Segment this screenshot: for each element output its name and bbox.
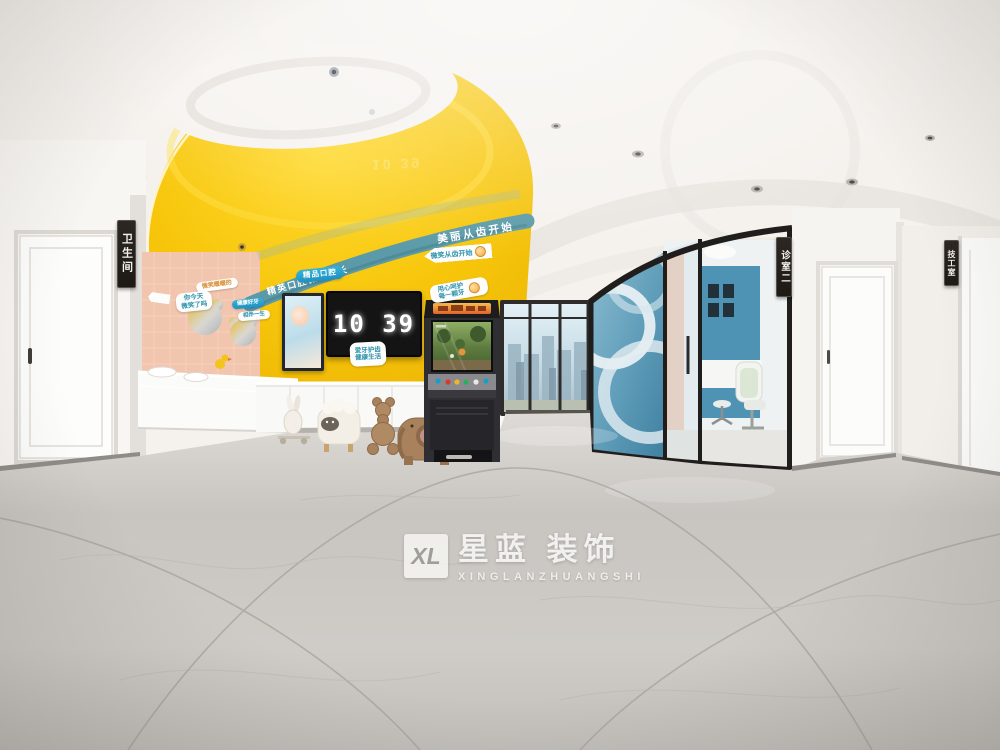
wash-basin	[148, 367, 176, 377]
baby-poster	[282, 293, 324, 371]
door-handle	[28, 348, 32, 364]
tv-tag-sign: 爱牙护齿 健康生活	[349, 341, 386, 367]
glass-door	[668, 240, 700, 462]
room2-door-sign: 诊室二	[776, 237, 792, 297]
lab-door	[960, 236, 1000, 476]
cloud-lamp	[704, 245, 736, 259]
pink-wall-sign-2b: 微笑了吗	[181, 300, 208, 310]
lab-door-sign: 技工室	[944, 240, 959, 286]
scene-drawing: 精英口腔微笑成长 美丽从齿开始	[0, 0, 1000, 750]
baby-face-art	[291, 306, 309, 326]
arcade-machine	[424, 300, 500, 462]
clock-ceiling-reflection: 10 39	[372, 155, 423, 174]
clock-time: 10 39	[333, 310, 415, 338]
panorama-scene: 精英口腔微笑成长 美丽从齿开始	[0, 0, 1000, 750]
pink-wall-sign-2: 你今天 微笑了吗	[175, 290, 213, 313]
left-wall	[0, 140, 146, 475]
smile-arrow-text: 微笑从齿开始	[430, 247, 473, 261]
room2-door	[818, 263, 896, 459]
tv-tag-line2: 健康生活	[355, 353, 381, 362]
door-handle	[827, 350, 830, 364]
right-wall	[792, 208, 1000, 478]
restroom-door-sign: 卫生间	[117, 220, 136, 288]
tooth-mascot-icon	[468, 281, 481, 294]
restroom-door	[16, 232, 116, 462]
wash-basin	[184, 373, 208, 382]
tooth-mascot-icon	[474, 246, 486, 258]
